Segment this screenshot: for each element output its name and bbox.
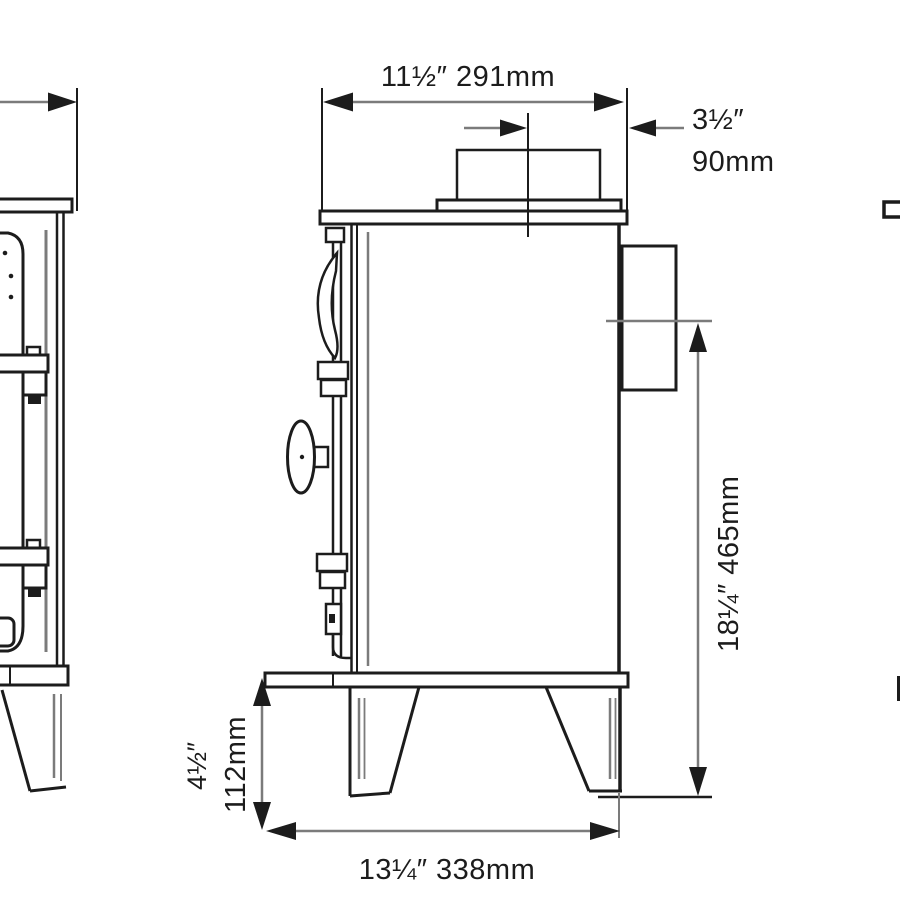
hinge-arm-lower <box>0 548 48 565</box>
door-rivet <box>9 295 14 300</box>
arrowhead-right-icon <box>48 93 77 112</box>
rear-leg-inner <box>546 687 589 791</box>
door-foot-curve <box>333 634 352 658</box>
dim-top-width-label: 11½″ 291mm <box>381 61 555 93</box>
door-rivet <box>3 251 8 256</box>
stove-technical-drawing: 11½″ 291mm 3½″ 90mm 18¼″ 465mm 4½″ 112mm… <box>0 0 900 900</box>
door-top-block <box>326 228 344 242</box>
arrowhead-right-icon <box>590 822 620 840</box>
leg-foot <box>30 787 66 791</box>
knob-center-dot <box>300 455 304 459</box>
fragment-top-corner <box>884 202 900 217</box>
door-bracket-lower <box>317 554 347 571</box>
hinge-pin-bottom <box>28 588 41 597</box>
arrowhead-down-icon <box>253 802 271 830</box>
front-view-partial <box>0 88 77 791</box>
hinge-arm-upper <box>0 355 48 372</box>
door-latch-lever <box>318 253 338 358</box>
top-plate <box>0 199 72 212</box>
drawing-svg: 11½″ 291mm 3½″ 90mm 18¼″ 465mm 4½″ 112mm… <box>0 0 900 900</box>
leg-front-edge <box>2 690 30 791</box>
dim-flue-offset-mm-label: 90mm <box>692 146 775 178</box>
front-leg-inner <box>390 687 419 793</box>
door-bracket-upper <box>318 362 348 379</box>
hinge-pin-bottom <box>28 395 41 404</box>
door-bracket-upper-2 <box>321 380 346 396</box>
door-bracket-lower-2 <box>320 572 345 588</box>
arrowhead-left-icon <box>266 822 296 840</box>
dim-height-label: 18¼″ 465mm <box>713 476 745 652</box>
arrowhead-right-icon <box>500 120 527 137</box>
adjacent-view-fragment <box>884 202 900 701</box>
arrowhead-right-icon <box>594 93 624 112</box>
hinge-block-lower <box>23 565 46 588</box>
arrowhead-left-icon <box>629 120 656 137</box>
top-plate <box>320 211 627 224</box>
front-leg-foot <box>350 793 390 796</box>
dim-leg-height-mm-label: 112mm <box>220 716 252 813</box>
dim-flue-offset-inches-label: 3½″ <box>692 104 744 136</box>
dim-base-width-label: 13¼″ 338mm <box>359 854 535 886</box>
hinge-block-upper <box>23 372 46 395</box>
arrowhead-up-icon <box>689 323 707 352</box>
base-plate <box>265 673 628 687</box>
door-lower-notch <box>329 614 335 623</box>
dim-leg-height-inches-label: 4½″ <box>182 741 212 790</box>
arrowhead-down-icon <box>689 767 707 796</box>
rear-flue-box <box>622 246 676 390</box>
arrowhead-left-icon <box>323 93 353 112</box>
latch-plate <box>0 618 14 646</box>
door-rivet <box>9 274 14 279</box>
side-view <box>265 150 712 838</box>
